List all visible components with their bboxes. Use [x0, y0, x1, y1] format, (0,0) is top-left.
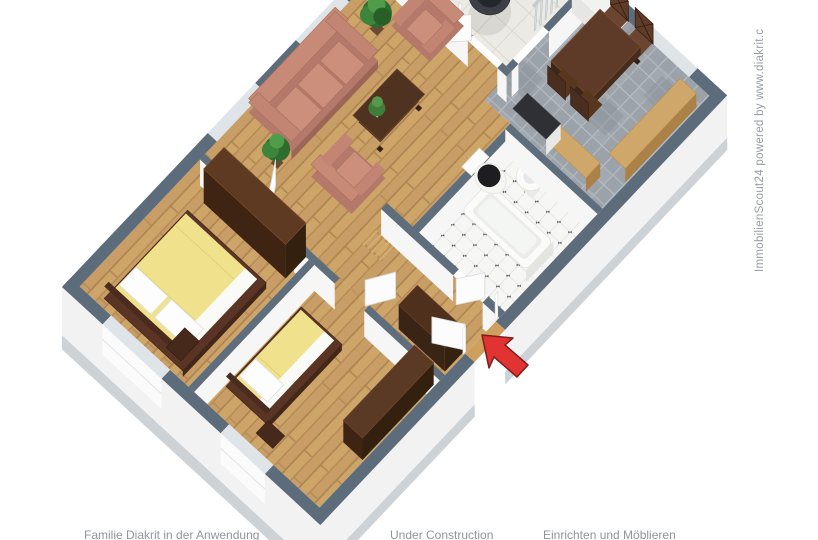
floorplan-3d-render: ImmobilienScout24 powered by www.diakrit… [0, 0, 818, 540]
caption-segment: Under Construction [390, 528, 493, 540]
floorplan-screenshot: ImmobilienScout24 powered by www.diakrit… [0, 0, 818, 540]
credit-text: ImmobilienScout24 powered by www.diakrit… [754, 29, 766, 272]
caption-segment: Einrichten und Möblieren [543, 528, 676, 540]
caption-segment: Familie Diakrit in der Anwendung [84, 528, 259, 540]
